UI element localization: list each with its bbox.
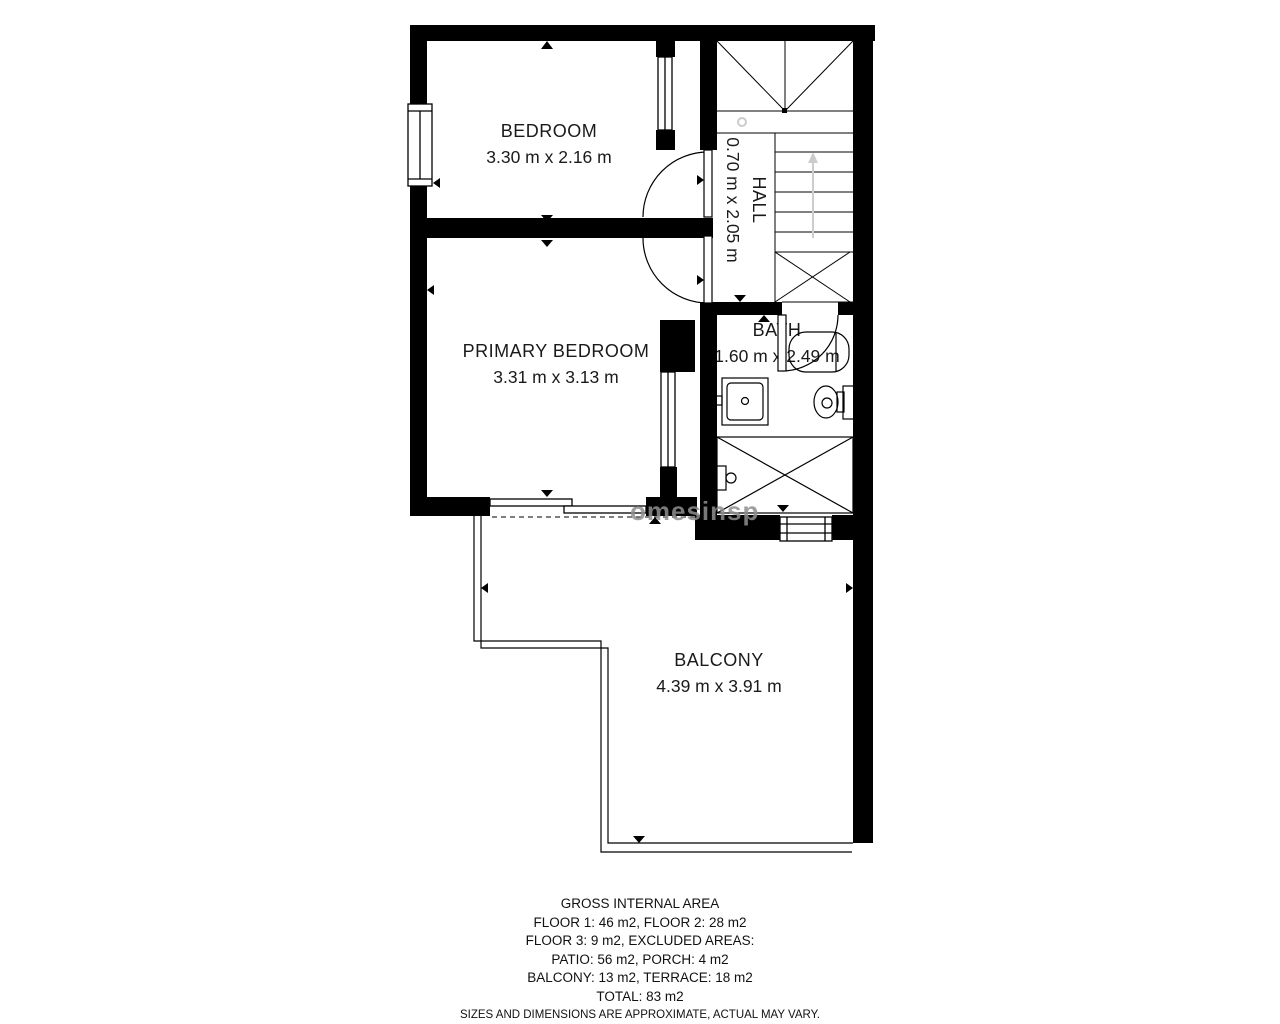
stair-direction-arrow (738, 118, 818, 238)
sliding-door-balcony (780, 517, 832, 541)
door-primary-bedroom (643, 236, 712, 303)
staircase (717, 41, 853, 302)
door-bedroom (643, 150, 712, 217)
toilet (814, 386, 854, 419)
dimension-markers (427, 41, 853, 843)
shower (717, 437, 853, 513)
door-bath (778, 315, 838, 371)
window-bedroom-right (658, 57, 672, 130)
sink (713, 378, 768, 425)
window-primary-right (661, 372, 675, 467)
bathtub (789, 332, 849, 372)
balcony-parapet (474, 516, 853, 852)
sliding-door-primary (490, 499, 646, 513)
windows (408, 57, 832, 541)
window-left (408, 104, 432, 186)
floor-plan-drawing (0, 0, 1280, 1024)
walls (410, 25, 875, 843)
floor-plan-page: BEDROOM 3.30 m x 2.16 m PRIMARY BEDROOM … (0, 0, 1280, 1024)
